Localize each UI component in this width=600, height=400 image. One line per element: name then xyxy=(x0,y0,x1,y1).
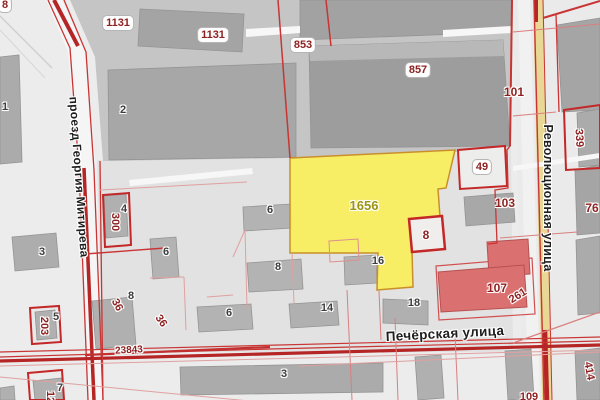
building xyxy=(138,9,244,52)
building xyxy=(415,355,444,400)
map-canvas xyxy=(0,0,600,400)
building xyxy=(180,363,383,395)
building xyxy=(464,193,515,226)
building xyxy=(243,204,292,231)
building xyxy=(575,348,600,400)
building xyxy=(0,386,15,400)
building xyxy=(289,301,339,328)
building xyxy=(383,299,428,325)
building xyxy=(0,55,22,164)
building xyxy=(557,18,600,112)
building xyxy=(576,236,600,315)
map-viewport[interactable]: 1131 1131 853 857 49 101 103 8 107 261 7… xyxy=(0,0,600,400)
building xyxy=(92,297,136,349)
building xyxy=(108,63,296,160)
building xyxy=(197,304,253,332)
parcel-8[interactable] xyxy=(409,216,445,252)
building xyxy=(344,255,377,285)
building xyxy=(247,259,303,292)
parcel-49[interactable] xyxy=(458,146,507,189)
building xyxy=(150,237,179,279)
building xyxy=(12,233,59,271)
building xyxy=(575,165,600,235)
building xyxy=(104,194,128,238)
